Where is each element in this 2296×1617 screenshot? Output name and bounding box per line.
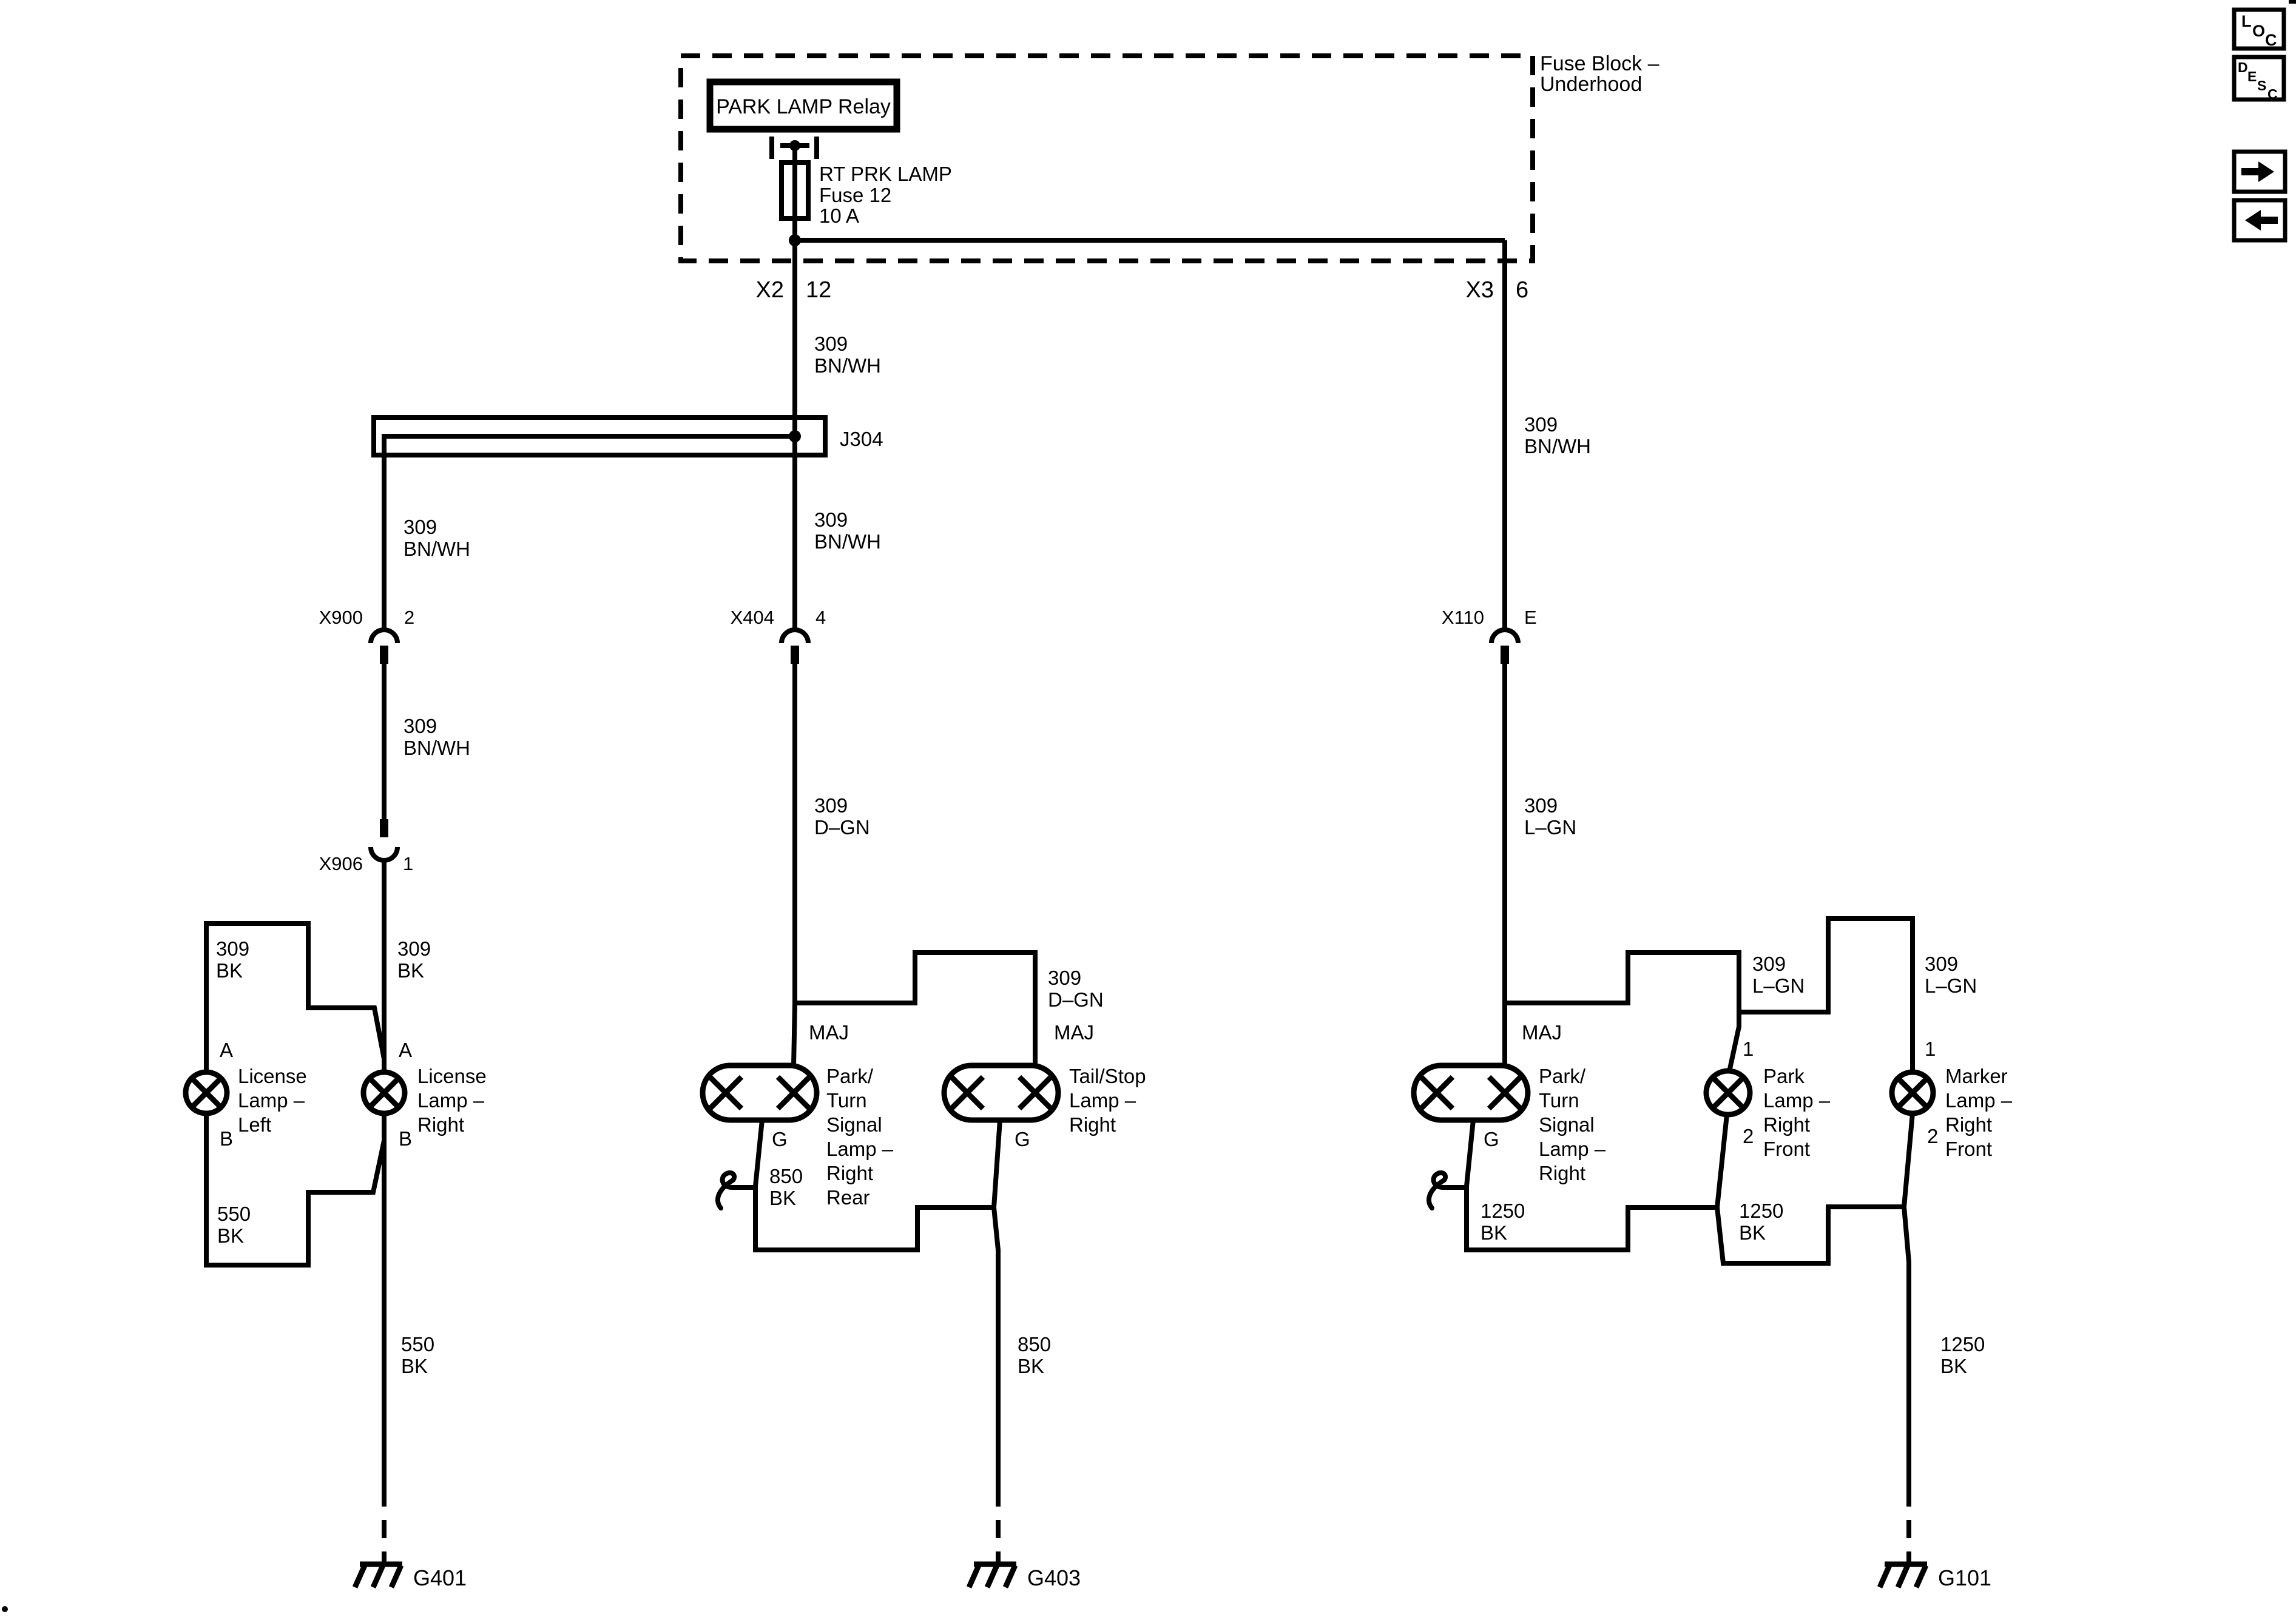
label-license-right-circuit: 309 <box>397 937 431 960</box>
label-marker-branch-circuit: 309 <box>1925 953 1958 975</box>
lamp-license-right-name: Lamp – <box>417 1089 485 1112</box>
wire-tailstop-branch <box>795 953 1035 1065</box>
connector-x3-label: X3 <box>1466 277 1494 303</box>
terminal-license-right-a: A <box>399 1039 412 1061</box>
lamp-parkturn-rear-name: Right <box>826 1162 873 1184</box>
connector-x900-symbol <box>371 630 397 664</box>
wire-rear-gnd <box>994 1120 1000 1488</box>
lamp-tailstop-name: Lamp – <box>1069 1089 1136 1112</box>
fuse-rating: 10 A <box>819 204 859 227</box>
lamp-parkturn-rear-name: Park/ <box>826 1065 874 1087</box>
lamp-parkturn-front-name: Right <box>1539 1162 1585 1184</box>
terminal-tailstop-g: G <box>1015 1128 1030 1150</box>
label-x3-feed-circuit: 309 <box>1524 413 1558 436</box>
left-arrow-icon <box>2245 210 2278 231</box>
label-parkturn-front-gnd-circuit: 1250 <box>1481 1200 1525 1222</box>
ground-id-g101: G101 <box>1938 1565 1991 1590</box>
terminal-parkturn-front-g: G <box>1484 1128 1499 1150</box>
connector-x404-symbol <box>782 630 808 664</box>
lamp-park-front-name: Lamp – <box>1763 1089 1831 1112</box>
lamp-marker-front-name: Right <box>1945 1113 1992 1136</box>
lamp-license-right-name: Right <box>417 1113 464 1136</box>
lamp-park-front-name: Right <box>1763 1113 1810 1136</box>
label-x2-feed-color: BN/WH <box>814 354 881 377</box>
label-front-gnd-color: BK <box>1940 1355 1967 1377</box>
connector-x900-pin: 2 <box>404 607 414 628</box>
loc-letter: L <box>2241 12 2252 30</box>
label-parkturn-rear-gnd-circuit: 850 <box>769 1165 803 1187</box>
lamp-license-left-name: License <box>238 1065 307 1087</box>
terminal-marker-front-1: 1 <box>1925 1038 1936 1060</box>
label-tailstop-branch-circuit: 309 <box>1048 967 1081 989</box>
label-license-left-color: BK <box>216 959 243 982</box>
park-lamps-schematic: Fuse Block – Underhood PARK LAMP Relay R… <box>0 0 2296 1617</box>
label-x3-feed-color: BN/WH <box>1524 435 1591 457</box>
splice-dot-j304 <box>789 430 801 442</box>
label-license-right-color: BK <box>397 959 424 982</box>
terminal-license-left-a: A <box>220 1039 233 1061</box>
label-parkfront-gnd-circuit: 1250 <box>1739 1200 1783 1222</box>
label-license-left-gnd-circuit: 550 <box>217 1203 251 1225</box>
wiring-diagram-page: Fuse Block – Underhood PARK LAMP Relay R… <box>0 0 2296 1617</box>
lamp-park-front-name: Park <box>1763 1065 1805 1087</box>
label-license-left-gnd-color: BK <box>217 1224 244 1247</box>
lamp-parkturn-front-name: Park/ <box>1539 1065 1586 1087</box>
gnd-pigtail-curl-icon <box>718 1173 734 1208</box>
connector-x110-symbol <box>1491 630 1518 664</box>
wire-x404-out <box>794 664 795 1065</box>
fuse-name: RT PRK LAMP <box>819 163 952 185</box>
label-x404-out-circuit: 309 <box>814 794 848 817</box>
lamp-park-front-name: Front <box>1763 1138 1810 1160</box>
terminal-parkturn-rear-g: G <box>772 1128 788 1150</box>
label-x110-feed-color: L–GN <box>1524 816 1576 839</box>
lamp-marker-front-name: Marker <box>1945 1065 2008 1087</box>
right-arrow-icon <box>2241 161 2274 182</box>
page-corner-dot <box>2 1606 8 1612</box>
connector-x906-symbol <box>371 819 397 860</box>
fuse-block-title-line2: Underhood <box>1540 73 1642 96</box>
label-marker-branch-color: L–GN <box>1925 974 1977 997</box>
j304-label: J304 <box>840 428 883 450</box>
lamp-tailstop-symbol <box>944 1065 1058 1120</box>
label-rear-gnd-circuit: 850 <box>1018 1333 1051 1355</box>
park-lamp-relay-label: PARK LAMP Relay <box>716 95 891 118</box>
wire-j304-branch <box>384 436 795 630</box>
prev-page-button[interactable] <box>2234 200 2285 240</box>
terminal-park-front-1: 1 <box>1743 1038 1754 1060</box>
label-x900-x906-color: BN/WH <box>403 737 470 759</box>
lamp-parkturn-front-symbol <box>1414 1065 1528 1120</box>
lamp-parkturn-rear-name: Turn <box>826 1089 867 1112</box>
lamp-parkturn-rear-symbol <box>703 1065 817 1120</box>
lamp-license-left-name: Lamp – <box>238 1089 305 1112</box>
terminal-license-left-b: B <box>220 1127 233 1150</box>
desc-letter: D <box>2238 59 2248 75</box>
label-parklamp-branch-circuit: 309 <box>1752 953 1786 975</box>
lamp-license-right-symbol <box>363 1072 405 1113</box>
lamp-license-left-name: Left <box>238 1113 271 1136</box>
connector-x110-pin: E <box>1524 607 1537 628</box>
connector-x404-pin: 4 <box>815 607 826 628</box>
label-x404-feed-color: BN/WH <box>814 530 881 553</box>
loc-letter: C <box>2265 31 2277 49</box>
connector-x2-pin: 12 <box>806 277 831 303</box>
terminal-parkturn-front-maj: MAJ <box>1522 1021 1562 1044</box>
connector-x900-label: X900 <box>319 607 363 628</box>
lamp-marker-front-symbol <box>1892 1072 1933 1113</box>
terminal-marker-front-2: 2 <box>1927 1125 1938 1147</box>
label-x404-out-color: D–GN <box>814 816 870 839</box>
lamp-tailstop-name: Right <box>1069 1113 1116 1136</box>
ground-id-g401: G401 <box>413 1565 467 1590</box>
lamp-parkturn-front-name: Turn <box>1539 1089 1579 1112</box>
label-license-left-circuit: 309 <box>216 937 249 960</box>
ground-symbol-g401 <box>355 1564 402 1587</box>
label-license-gnd-color: BK <box>401 1355 428 1377</box>
lamp-marker-front-name: Front <box>1945 1138 1992 1160</box>
terminal-tailstop-maj: MAJ <box>1054 1021 1094 1044</box>
gnd-pigtail-curl-icon <box>1429 1173 1445 1208</box>
label-parkturn-rear-gnd-color: BK <box>769 1187 796 1209</box>
wire-front-gnd <box>1904 1113 1913 1488</box>
lamp-park-front-symbol <box>1706 1071 1750 1115</box>
lamp-marker-front-name: Lamp – <box>1945 1089 2013 1112</box>
label-x2-feed-circuit: 309 <box>814 333 848 355</box>
label-tailstop-branch-color: D–GN <box>1048 988 1104 1011</box>
lamp-parkturn-rear-name: Lamp – <box>826 1138 894 1160</box>
ground-id-g403: G403 <box>1027 1565 1081 1590</box>
label-license-gnd-circuit: 550 <box>401 1333 434 1355</box>
connector-x906-label: X906 <box>319 853 363 874</box>
label-x404-feed-circuit: 309 <box>814 508 848 531</box>
desc-button[interactable]: D E S C <box>2234 57 2284 102</box>
label-parkfront-gnd-color: BK <box>1739 1221 1766 1244</box>
ground-symbol-g403 <box>969 1564 1016 1587</box>
lamp-tailstop-name: Tail/Stop <box>1069 1065 1146 1087</box>
desc-letter: S <box>2257 78 2266 93</box>
connector-x110-label: X110 <box>1442 607 1484 628</box>
loc-letter: O <box>2252 22 2265 40</box>
lamp-parkturn-front-name: Signal <box>1539 1113 1595 1136</box>
terminal-license-right-b: B <box>399 1127 412 1150</box>
fuse-number: Fuse 12 <box>819 184 891 206</box>
connector-x3-pin: 6 <box>1516 277 1528 303</box>
label-parklamp-branch-color: L–GN <box>1752 974 1805 997</box>
lamp-parkturn-rear-name: Rear <box>826 1186 870 1209</box>
fuse-block-title-line1: Fuse Block – <box>1540 52 1660 75</box>
ground-symbol-g101 <box>1880 1564 1927 1587</box>
lamp-parkturn-front-name: Lamp – <box>1539 1138 1606 1160</box>
label-rear-gnd-color: BK <box>1018 1355 1044 1377</box>
lamp-parkturn-rear-name: Signal <box>826 1113 882 1136</box>
wire-parklamp-branch <box>1506 953 1739 1072</box>
lamp-license-left-symbol <box>186 1072 227 1113</box>
label-x900-x906-circuit: 309 <box>403 715 437 737</box>
loc-button[interactable]: L O C <box>2234 10 2284 49</box>
label-j304-left-color: BN/WH <box>403 538 470 560</box>
next-page-button[interactable] <box>2234 152 2285 192</box>
connector-x906-pin: 1 <box>403 853 413 874</box>
label-parkturn-front-gnd-color: BK <box>1481 1221 1507 1244</box>
desc-letter: C <box>2267 86 2278 102</box>
lamp-license-right-name: License <box>417 1065 487 1087</box>
desc-letter: E <box>2247 69 2257 84</box>
label-front-gnd-circuit: 1250 <box>1940 1333 1985 1355</box>
connector-x2-label: X2 <box>756 277 784 303</box>
label-x110-feed-circuit: 309 <box>1524 794 1558 817</box>
terminal-park-front-2: 2 <box>1743 1125 1754 1147</box>
terminal-parkturn-rear-maj: MAJ <box>809 1021 849 1044</box>
fuse-block-boundary <box>681 56 1533 261</box>
connector-x404-label: X404 <box>731 607 774 628</box>
label-j304-left-circuit: 309 <box>403 516 437 538</box>
page-edge-mark <box>2289 0 2296 4</box>
